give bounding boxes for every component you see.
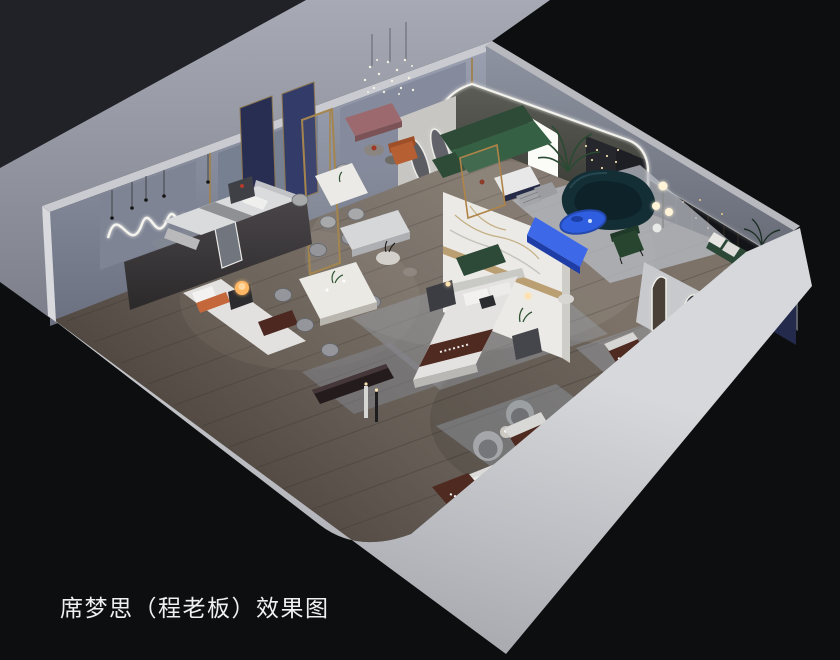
table-decor: [588, 219, 592, 223]
caption-title: 席梦思（程老板）效果图: [60, 589, 330, 623]
render-viewport: 席梦思（程老板）效果图: [0, 0, 840, 660]
small-round-table: [558, 294, 574, 304]
wall-sconce: [525, 293, 531, 299]
glass-display-case: [460, 145, 505, 218]
table-decor: [571, 216, 583, 222]
floorplan-render: [0, 0, 840, 660]
